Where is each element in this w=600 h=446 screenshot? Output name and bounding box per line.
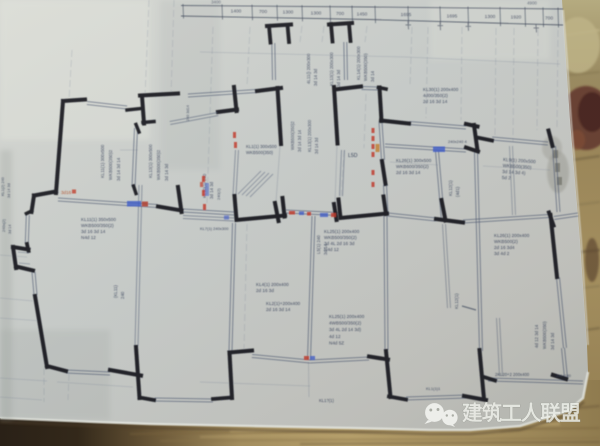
svg-text:建筑工人联盟: 建筑工人联盟 [462, 401, 581, 425]
